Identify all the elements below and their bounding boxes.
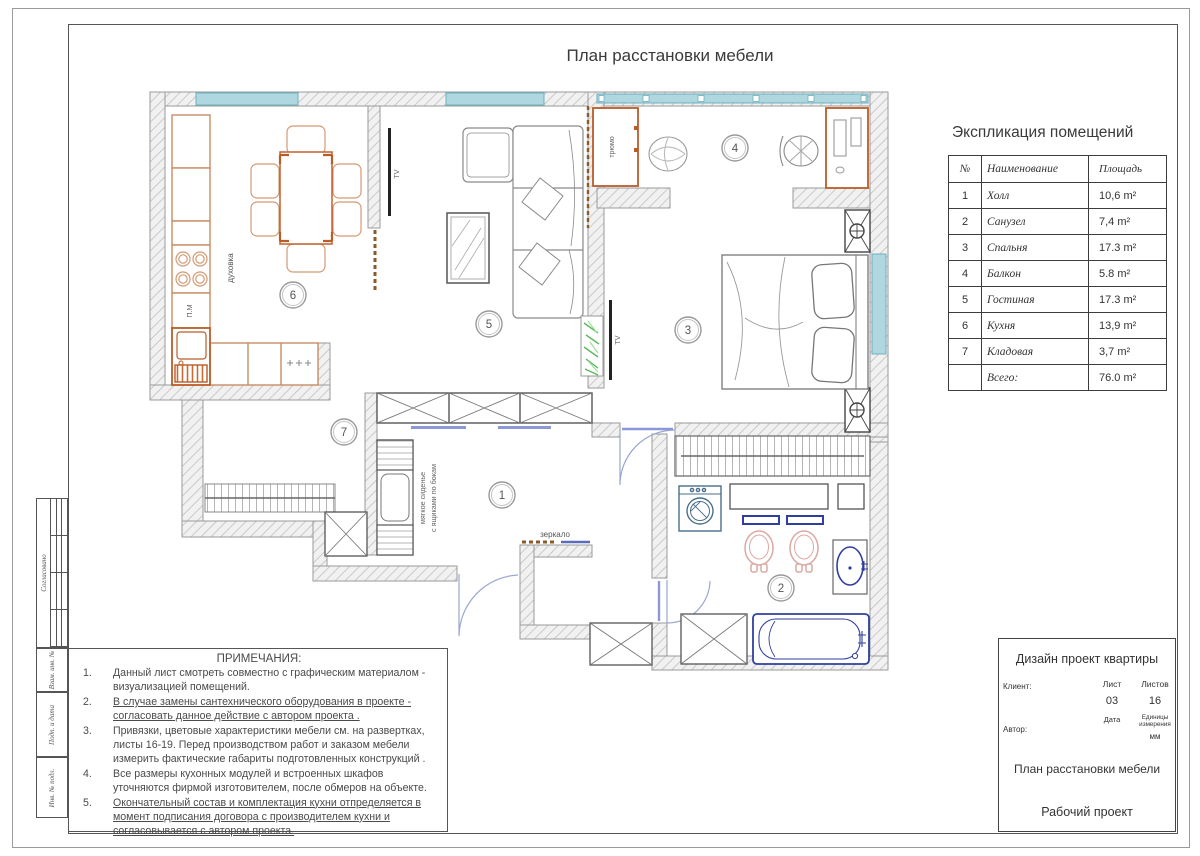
explication-table: № Наименование Площадь 1Холл10,6 m² 2Сан… xyxy=(948,155,1167,391)
vent-box xyxy=(845,388,870,432)
svg-text:6: 6 xyxy=(290,290,296,302)
table-row: 7Кладовая3,7 m² xyxy=(949,339,1167,365)
table-row-total: Всего:76.0 m² xyxy=(949,365,1167,391)
svg-text:5: 5 xyxy=(486,319,492,331)
explication-title: Экспликация помещений xyxy=(952,124,1133,142)
vent-box xyxy=(845,210,870,252)
bath-cabinet xyxy=(681,614,747,664)
svg-text:1: 1 xyxy=(499,490,505,502)
kitchen-furniture xyxy=(172,115,361,385)
bedroom-furniture xyxy=(609,210,870,432)
storage-cabinet xyxy=(325,512,367,556)
units-label: Единицы измерения xyxy=(1133,713,1177,729)
svg-text:7: 7 xyxy=(341,427,347,439)
dining-table xyxy=(280,152,332,244)
stamp-podp-label: Подп. и дата xyxy=(48,705,56,745)
oven-label: духовка xyxy=(226,253,235,283)
stamp-grid xyxy=(50,499,67,647)
pouf xyxy=(649,137,687,171)
stamp-podp-cell: Подп. и дата xyxy=(36,692,68,757)
bench-label-2: с ящиками по бокам xyxy=(429,464,438,532)
sink xyxy=(833,540,868,594)
washing-machine xyxy=(679,486,721,531)
coffee-table xyxy=(447,213,489,283)
stove xyxy=(172,245,210,293)
stamp-approved-label: Согласовано xyxy=(40,554,48,591)
list-item: 2.В случае замены сантехнического оборуд… xyxy=(77,696,441,724)
units-value: мм xyxy=(1133,729,1177,746)
room-number-2: 2 xyxy=(768,575,794,601)
living-window xyxy=(446,93,544,105)
stamp-vzam-label: Взам. инв. № xyxy=(48,651,56,690)
sheet-label: Лист xyxy=(1091,679,1133,695)
stamp-inv-label: Инв. № подл. xyxy=(48,768,56,807)
dishwasher-label: П.М xyxy=(185,304,194,317)
table-row: 3Спальня17.3 m² xyxy=(949,235,1167,261)
wardrobe xyxy=(377,393,592,423)
client-label: Клиент: xyxy=(999,679,1091,713)
svg-text:3: 3 xyxy=(685,325,691,337)
bath-shelf xyxy=(838,484,864,509)
bench xyxy=(377,440,413,555)
table-row: 2Санузел7,4 m² xyxy=(949,209,1167,235)
svg-text:4: 4 xyxy=(732,143,739,155)
dressing-table-label: трюмо xyxy=(607,136,616,158)
title-block: Дизайн проект квартиры Клиент: Лист Лист… xyxy=(998,638,1176,832)
explication-header: № Наименование Площадь xyxy=(949,156,1167,183)
hanger-rail xyxy=(205,484,335,512)
table-row: 4Балкон5.8 m² xyxy=(949,261,1167,287)
stamp-inv-cell: Инв. № подл. xyxy=(36,757,68,818)
list-item: 5.Окончательный состав и комплектация ку… xyxy=(77,797,441,839)
tv-label-living: TV xyxy=(392,169,401,178)
list-item: 4.Все размеры кухонных модулей и встроен… xyxy=(77,768,441,796)
dining-set xyxy=(251,126,361,272)
room-number-3: 3 xyxy=(675,317,701,343)
bath-counter xyxy=(730,484,828,509)
wall-mirror xyxy=(743,516,779,524)
author-label: Автор: xyxy=(999,713,1091,746)
entry-door xyxy=(459,574,518,636)
room-number-5: 5 xyxy=(476,311,502,337)
drawing-title: План расстановки мебели xyxy=(999,746,1175,791)
desk xyxy=(826,108,868,188)
floor-plan: духовка П.М TV xyxy=(85,78,915,688)
table-row: 1Холл10,6 m² xyxy=(949,183,1167,209)
mirror-label: зеркало xyxy=(540,530,570,539)
toilet xyxy=(745,531,773,572)
bedroom-window xyxy=(872,254,886,354)
kitchen-sink xyxy=(172,328,210,385)
sheets-label: Листов xyxy=(1133,679,1177,695)
table-row: 6Кухня13,9 m² xyxy=(949,313,1167,339)
list-item: 3.Привязки, цветовые характеристики мебе… xyxy=(77,725,441,767)
room-number-7: 7 xyxy=(331,419,357,445)
kitchen-window xyxy=(196,93,298,105)
balcony-glazing xyxy=(597,94,868,103)
room-number-1: 1 xyxy=(489,482,515,508)
plant xyxy=(581,316,603,376)
bench-label-1: мягкое сиденье xyxy=(418,472,427,524)
room-number-4: 4 xyxy=(722,135,748,161)
bed xyxy=(722,255,868,389)
page-title: План расстановки мебели xyxy=(420,46,920,66)
toilet xyxy=(790,531,818,572)
stamp-vzam-cell: Взам. инв. № xyxy=(36,648,68,692)
bathroom-furniture xyxy=(675,436,870,664)
room-number-6: 6 xyxy=(280,282,306,308)
sheets-total: 16 xyxy=(1133,695,1177,713)
project-stage: Рабочий проект xyxy=(999,791,1175,833)
svg-text:2: 2 xyxy=(778,583,784,595)
desk-chair xyxy=(780,136,818,166)
stamp-approved-cell: Согласовано xyxy=(36,498,68,648)
date-value xyxy=(1091,729,1133,746)
bath-wardrobe xyxy=(675,436,870,476)
tv-panel xyxy=(388,128,391,216)
table-row: 5Гостиная17.3 m² xyxy=(949,287,1167,313)
tv-panel xyxy=(609,300,612,380)
date-label: Дата xyxy=(1091,713,1133,729)
wall-mirror xyxy=(787,516,823,524)
sheet-number: 03 xyxy=(1091,695,1133,713)
entry-wardrobe xyxy=(590,623,652,665)
tv-label-bedroom: TV xyxy=(613,335,622,344)
project-title: Дизайн проект квартиры xyxy=(999,639,1175,679)
bathtub xyxy=(753,614,869,664)
storage-furniture xyxy=(205,484,367,556)
